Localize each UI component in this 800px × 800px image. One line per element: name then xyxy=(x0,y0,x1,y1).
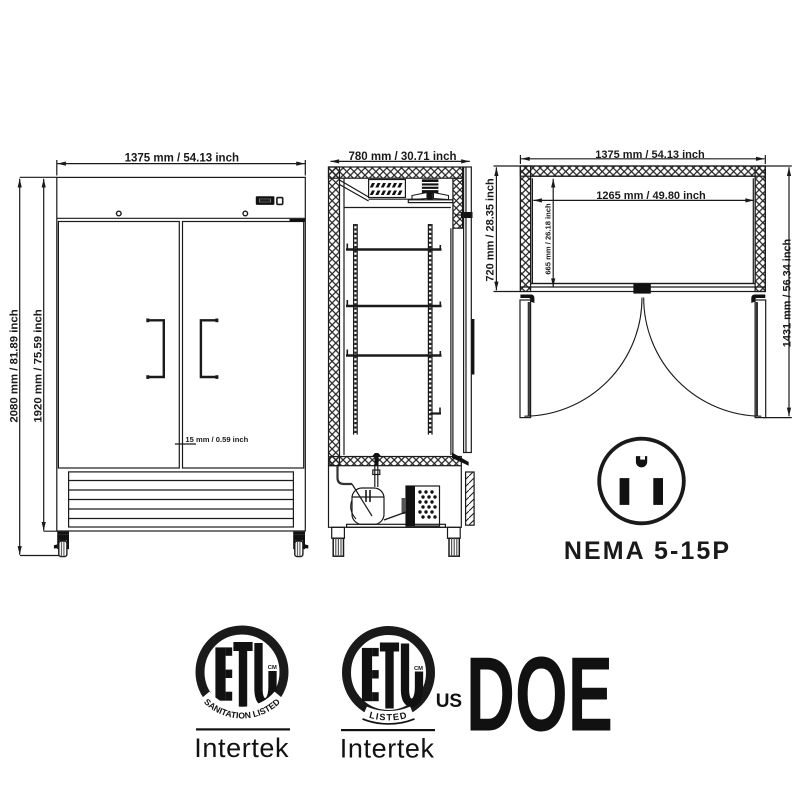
svg-text:NEMA 5-15P: NEMA 5-15P xyxy=(564,537,731,565)
svg-text:DOE: DOE xyxy=(466,634,613,753)
svg-text:15 mm / 0.59 inch: 15 mm / 0.59 inch xyxy=(185,435,248,444)
svg-text:Intertek: Intertek xyxy=(340,734,435,764)
svg-text:Intertek: Intertek xyxy=(194,733,289,763)
svg-text:CM: CM xyxy=(268,665,277,671)
svg-text:665 mm / 26.18 inch: 665 mm / 26.18 inch xyxy=(543,203,552,275)
svg-text:1920 mm / 75.59 inch: 1920 mm / 75.59 inch xyxy=(33,309,45,422)
svg-text:US: US xyxy=(436,691,462,712)
svg-text:CM: CM xyxy=(414,666,423,672)
svg-text:1375 mm / 54.13 inch: 1375 mm / 54.13 inch xyxy=(125,153,239,165)
svg-text:2080 mm / 81.89 inch: 2080 mm / 81.89 inch xyxy=(8,309,20,422)
svg-text:720 mm / 28.35 inch: 720 mm / 28.35 inch xyxy=(484,178,496,282)
svg-text:1431 mm / 56.34 inch: 1431 mm / 56.34 inch xyxy=(782,239,794,347)
